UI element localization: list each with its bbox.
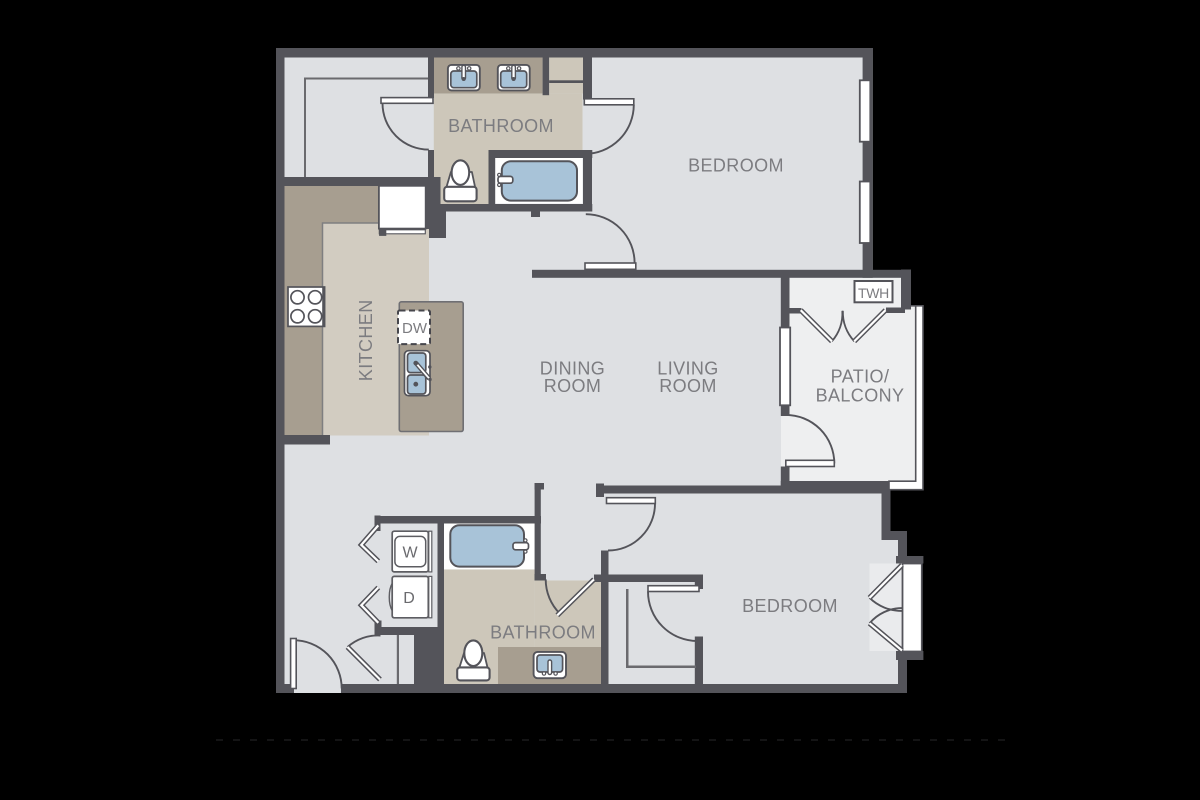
svg-text:W: W [402,545,418,562]
svg-text:BALCONY: BALCONY [816,385,905,405]
svg-text:BATHROOM: BATHROOM [490,622,596,642]
svg-text:BEDROOM: BEDROOM [688,156,784,176]
svg-text:PATIO/: PATIO/ [831,367,890,387]
svg-text:ROOM: ROOM [544,376,602,396]
svg-text:KITCHEN: KITCHEN [356,299,376,381]
svg-text:BATHROOM: BATHROOM [448,116,554,136]
svg-text:BEDROOM: BEDROOM [742,596,838,616]
svg-text:TWH: TWH [858,285,889,301]
svg-text:D: D [403,590,415,607]
svg-text:DW: DW [402,320,428,337]
svg-text:ROOM: ROOM [659,376,717,396]
